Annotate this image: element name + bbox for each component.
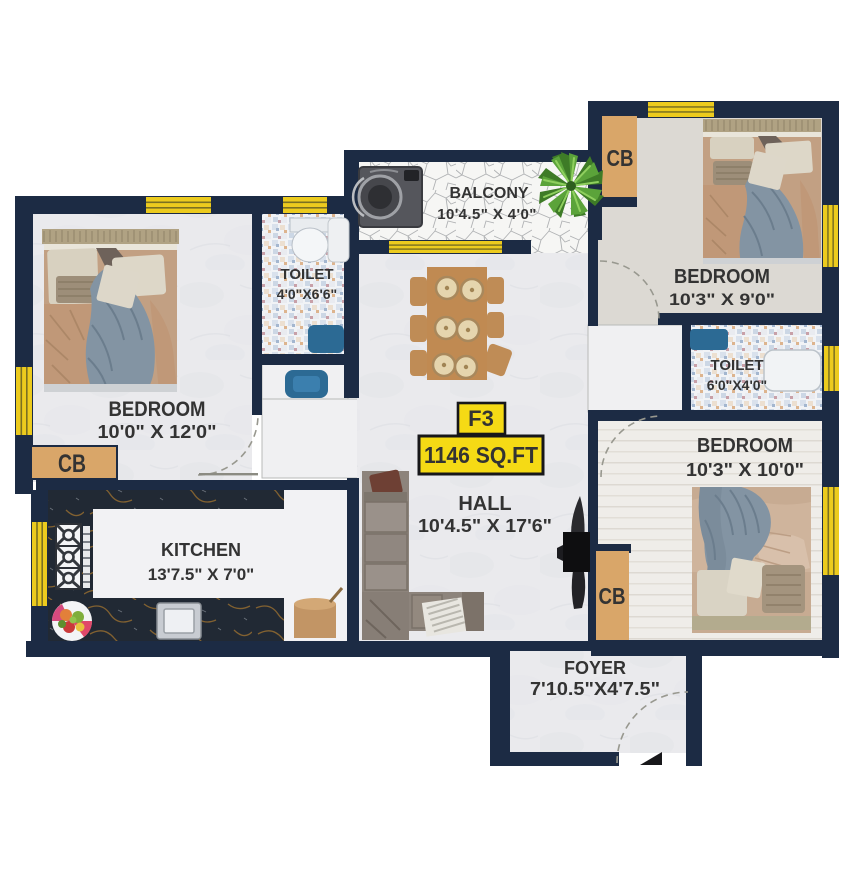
svg-text:10'3" X 9'0": 10'3" X 9'0" (669, 290, 775, 309)
svg-text:BALCONY: BALCONY (449, 185, 528, 202)
svg-text:BEDROOM: BEDROOM (697, 435, 793, 457)
svg-text:10'4.5" X 4'0": 10'4.5" X 4'0" (437, 206, 537, 223)
svg-text:CB: CB (58, 450, 86, 478)
svg-text:10'4.5" X 17'6": 10'4.5" X 17'6" (418, 516, 552, 536)
svg-text:BEDROOM: BEDROOM (109, 398, 206, 421)
svg-text:F3: F3 (468, 406, 494, 431)
svg-text:KITCHEN: KITCHEN (161, 540, 241, 560)
svg-text:10'3" X 10'0": 10'3" X 10'0" (686, 460, 804, 480)
svg-text:TOILET: TOILET (280, 266, 333, 283)
svg-text:CB: CB (607, 145, 634, 171)
svg-text:BEDROOM: BEDROOM (674, 266, 770, 288)
svg-text:CB: CB (599, 583, 626, 609)
svg-text:13'7.5" X 7'0": 13'7.5" X 7'0" (148, 565, 254, 584)
svg-text:FOYER: FOYER (564, 658, 626, 678)
svg-text:6'0"X4'0": 6'0"X4'0" (707, 377, 767, 393)
svg-text:4'0"X6'6": 4'0"X6'6" (277, 286, 337, 302)
svg-text:1146 SQ.FT: 1146 SQ.FT (424, 442, 538, 468)
svg-text:TOILET: TOILET (710, 357, 763, 374)
svg-text:7'10.5"X4'7.5": 7'10.5"X4'7.5" (530, 679, 660, 699)
svg-text:HALL: HALL (458, 493, 511, 515)
svg-text:10'0" X 12'0": 10'0" X 12'0" (98, 422, 217, 442)
